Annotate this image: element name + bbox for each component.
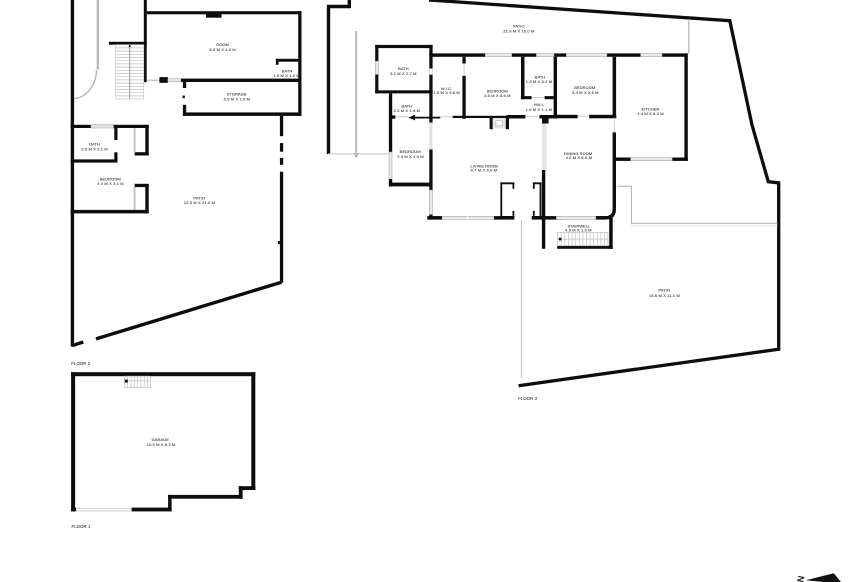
svg-text:4.4 M X 3.1 M: 4.4 M X 3.1 M <box>97 181 123 186</box>
svg-text:FLOOR 2: FLOOR 2 <box>71 361 90 366</box>
svg-text:4.0 M X 1.5 M: 4.0 M X 1.5 M <box>565 228 591 233</box>
svg-text:2.6 M X 2.1 M: 2.6 M X 2.1 M <box>81 147 107 152</box>
svg-text:3.4 M X 3.6 M: 3.4 M X 3.6 M <box>572 90 598 95</box>
svg-text:10.9 M X 8.2 M: 10.9 M X 8.2 M <box>147 442 176 447</box>
svg-text:12.5 M X 21.0 M: 12.5 M X 21.0 M <box>184 200 215 205</box>
svg-text:1.5 M X 1.2 M: 1.5 M X 1.2 M <box>273 73 299 78</box>
svg-text:6.7 M X 6.0 M: 6.7 M X 6.0 M <box>471 168 497 173</box>
svg-text:PATIO: PATIO <box>658 287 670 292</box>
svg-text:FLOOR 1: FLOOR 1 <box>72 524 91 529</box>
svg-text:2.3 M X 4.0 M: 2.3 M X 4.0 M <box>397 154 423 159</box>
svg-text:3.1 M X 2.7 M: 3.1 M X 2.7 M <box>390 71 416 76</box>
svg-text:1.9 M X 3.6 M: 1.9 M X 3.6 M <box>433 90 459 95</box>
svg-text:2.3 M X 1.4 M: 2.3 M X 1.4 M <box>394 108 420 113</box>
svg-text:21.9 M X 10.0 M: 21.9 M X 10.0 M <box>503 28 534 33</box>
svg-text:1.9 M X 2.4 M: 1.9 M X 2.4 M <box>526 79 552 84</box>
svg-text:4.4 M X 6.2 M: 4.4 M X 6.2 M <box>637 111 663 116</box>
svg-text:4.2 M X 6.0 M: 4.2 M X 6.0 M <box>566 155 592 160</box>
svg-text:3.5 M X 3.6 M: 3.5 M X 3.6 M <box>484 93 510 98</box>
svg-text:1.9 M X 1.1 M: 1.9 M X 1.1 M <box>526 107 552 112</box>
svg-text:15.6 M X 11.1 M: 15.6 M X 11.1 M <box>649 293 680 298</box>
svg-text:9.3 M X 4.0 M: 9.3 M X 4.0 M <box>209 47 235 52</box>
svg-text:FLOOR 3: FLOOR 3 <box>518 396 537 401</box>
svg-text:6.9 M X 1.9 M: 6.9 M X 1.9 M <box>224 96 250 101</box>
